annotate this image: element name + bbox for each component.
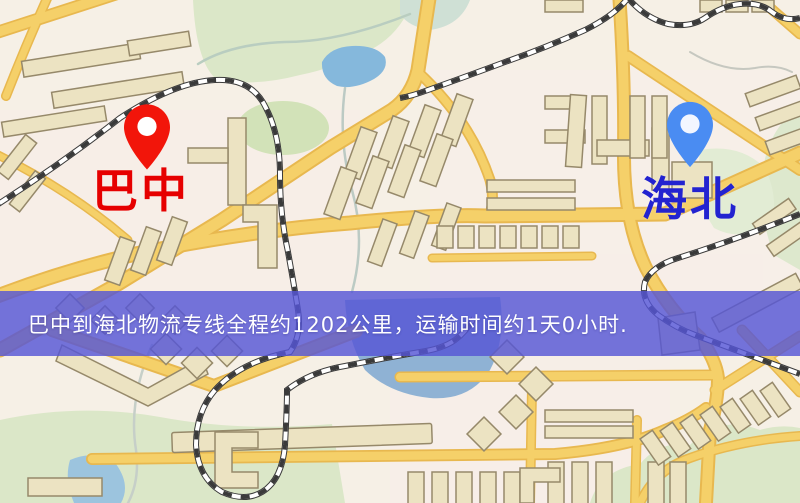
- route-info-banner: 巴中到海北物流专线全程约1202公里，运输时间约1天0小时.: [0, 291, 800, 356]
- destination-marker[interactable]: [667, 101, 713, 168]
- pin-hole: [137, 117, 156, 136]
- route-info-text: 巴中到海北物流专线全程约1202公里，运输时间约1天0小时.: [28, 309, 628, 339]
- map-pin-icon: [124, 104, 170, 170]
- map-screenshot: 巴中 海北 巴中到海北物流专线全程约1202公里，运输时间约1天0小时.: [0, 0, 800, 503]
- origin-marker[interactable]: [124, 104, 170, 170]
- map-canvas[interactable]: [0, 0, 800, 503]
- origin-label: 巴中: [92, 168, 190, 214]
- pin-body: [667, 102, 713, 167]
- map-pin-icon: [667, 101, 713, 168]
- pin-hole: [680, 114, 699, 133]
- pin-body: [124, 104, 170, 169]
- destination-label: 海北: [641, 176, 739, 222]
